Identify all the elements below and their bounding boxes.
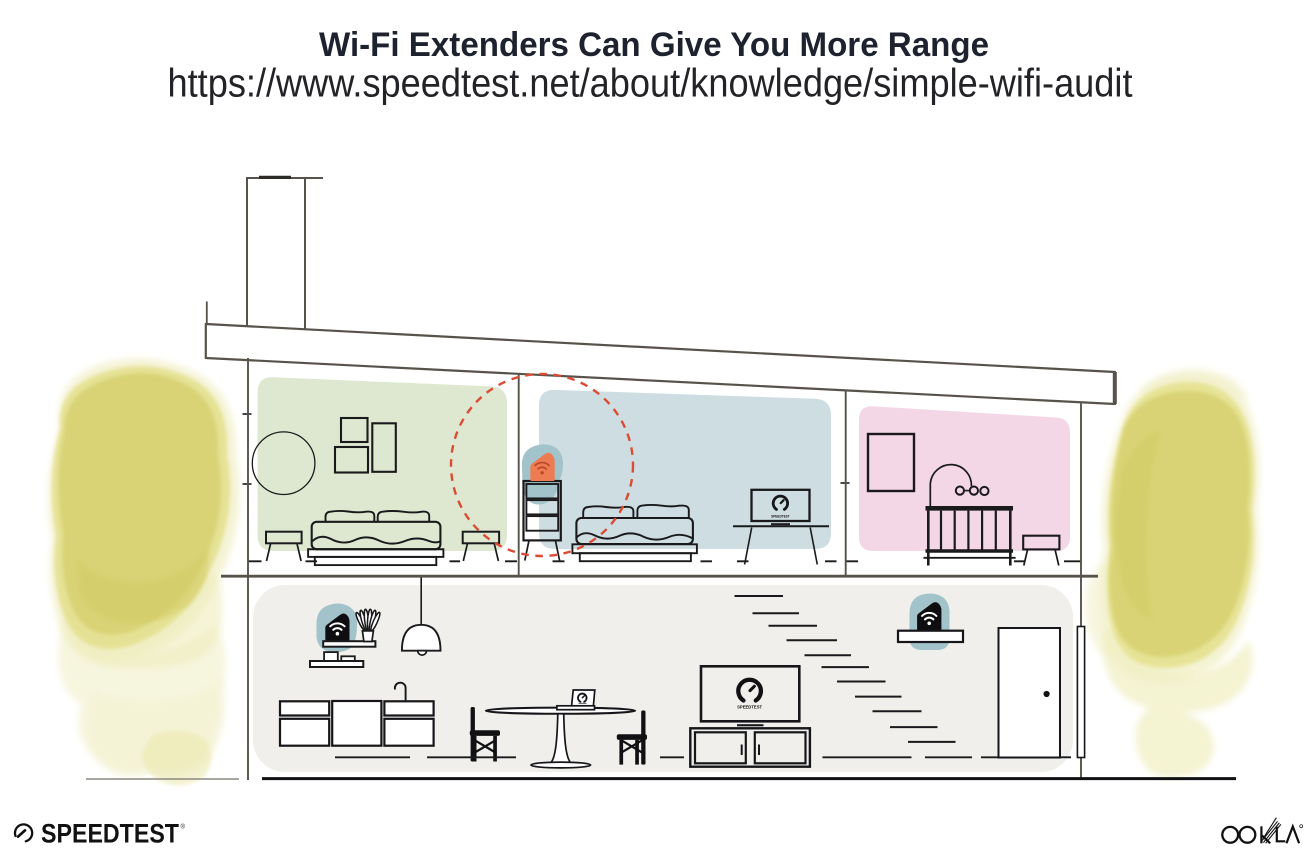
svg-text:SPEEDTEST: SPEEDTEST xyxy=(41,819,179,849)
svg-text:SPEEDTEST: SPEEDTEST xyxy=(771,514,790,518)
svg-text:®: ® xyxy=(181,824,186,831)
svg-text:Wi-Fi Extenders Can Give You M: Wi-Fi Extenders Can Give You More Range xyxy=(319,26,989,64)
svg-text:SPEEDTEST: SPEEDTEST xyxy=(737,704,762,709)
svg-text:https://www.speedtest.net/abou: https://www.speedtest.net/about/knowledg… xyxy=(168,62,1133,106)
